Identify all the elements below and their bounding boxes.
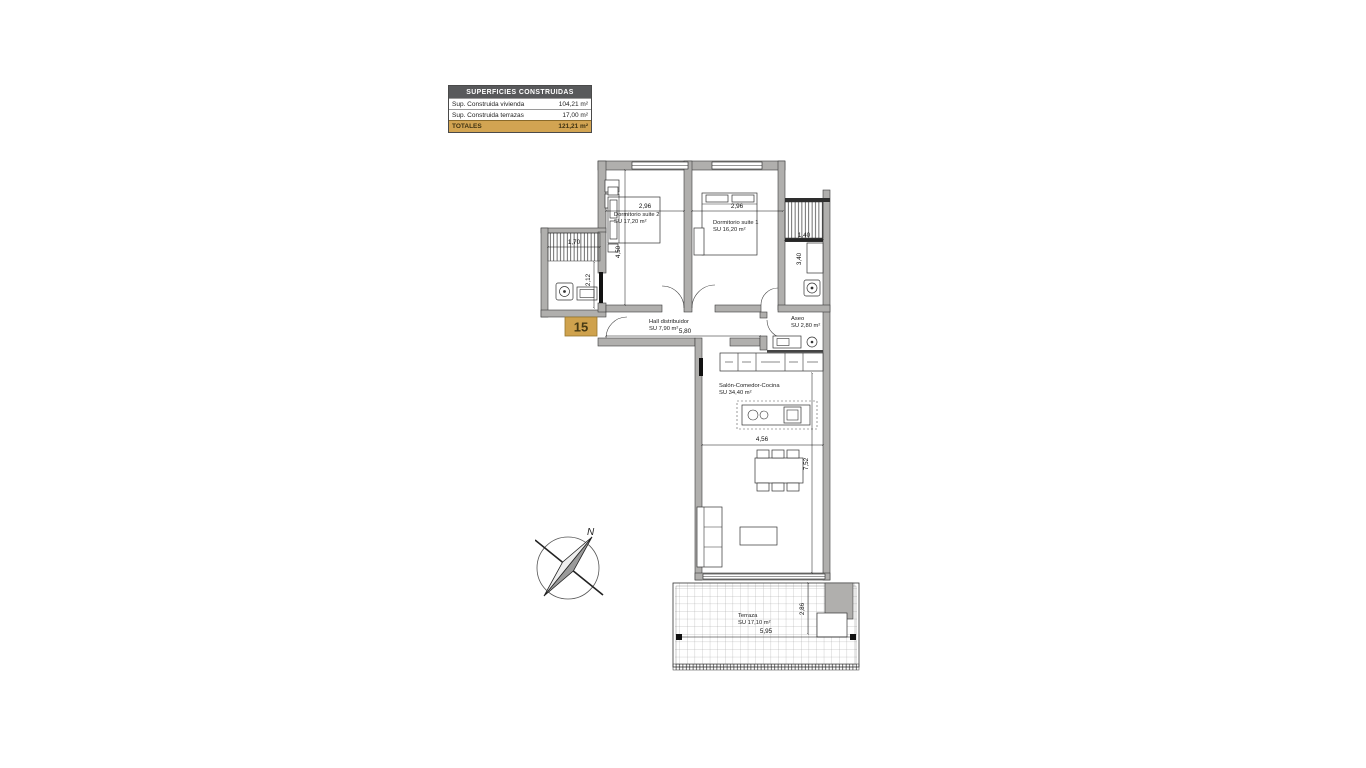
dim-terrace-width: 5,95 xyxy=(760,628,773,635)
compass-rose: N xyxy=(535,527,603,599)
total-value: 121,21 m² xyxy=(540,123,591,130)
dim-bath-right: 3,40 xyxy=(796,252,803,265)
dim-bed2-width: 2,96 xyxy=(639,203,652,210)
table-row: Sup. Construida terrazas 17,00 m² xyxy=(449,109,591,120)
floor-plan: 2,96 2,96 4,50 1,70 2,12 1,40 3,40 5,80 … xyxy=(535,140,880,685)
dim-salon-height: 7,52 xyxy=(803,457,810,470)
terrace xyxy=(673,583,859,670)
unit-number-badge: 15 xyxy=(565,317,597,336)
dim-bed1-width: 2,96 xyxy=(731,203,744,210)
row-value: 17,00 m² xyxy=(540,112,591,119)
room-salon-name: Salón-Comedor-Cocina xyxy=(719,383,780,389)
dim-bath-left: 2,12 xyxy=(585,273,592,286)
compass-north-label: N xyxy=(587,527,595,538)
row-value: 104,21 m² xyxy=(540,101,591,108)
room-terraza-name: Terraza xyxy=(738,613,758,619)
room-bed2-name: Dormitorio suite 2 xyxy=(614,212,659,218)
room-hall-name: Hall distribuidor xyxy=(649,319,689,325)
dim-balcony-right: 1,40 xyxy=(798,232,811,239)
dim-bed2-height: 4,50 xyxy=(615,245,622,258)
surfaces-table: SUPERFICIES CONSTRUIDAS Sup. Construida … xyxy=(448,85,592,133)
room-bed1-area: SU 16,20 m² xyxy=(713,227,746,233)
dim-balcony-left: 1,70 xyxy=(568,239,581,246)
total-label: TOTALES xyxy=(449,123,540,130)
table-total-row: TOTALES 121,21 m² xyxy=(449,120,591,132)
dim-terrace-height: 2,86 xyxy=(799,602,806,615)
room-salon-area: SU 34,40 m² xyxy=(719,390,752,396)
page: { "summary_table": { "header": "SUPERFIC… xyxy=(0,0,1366,768)
room-bed2-area: SU 17,20 m² xyxy=(614,219,647,225)
unit-number: 15 xyxy=(574,320,588,335)
room-terraza-area: SU 17,10 m² xyxy=(738,620,771,626)
row-label: Sup. Construida vivienda xyxy=(449,101,540,108)
room-aseo-name: Aseo xyxy=(791,316,804,322)
dim-hall-width: 5,80 xyxy=(679,328,692,335)
room-bed1-name: Dormitorio suite 1 xyxy=(713,220,758,226)
room-hall-area: SU 7,90 m² xyxy=(649,326,678,332)
row-label: Sup. Construida terrazas xyxy=(449,112,540,119)
surfaces-table-header: SUPERFICIES CONSTRUIDAS xyxy=(449,86,591,98)
dim-salon-width: 4,56 xyxy=(756,436,769,443)
table-row: Sup. Construida vivienda 104,21 m² xyxy=(449,98,591,109)
living-furniture xyxy=(697,450,803,567)
room-aseo-area: SU 2,80 m² xyxy=(791,323,820,329)
